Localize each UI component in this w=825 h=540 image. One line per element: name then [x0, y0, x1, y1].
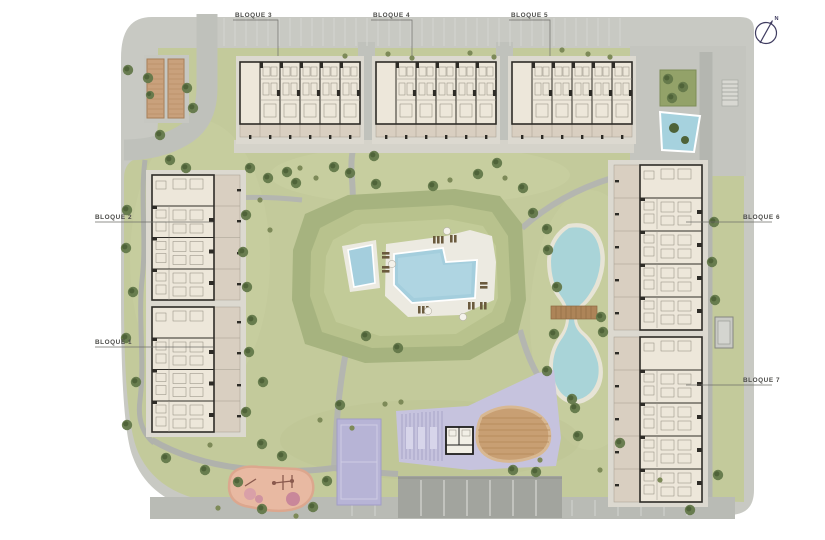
- pergola-2: [168, 59, 184, 118]
- site-plan-page: BLOQUE 3 BLOQUE 4 BLOQUE 5 BLOQUE 2 BLOQ…: [0, 0, 825, 540]
- building-bloque-5: [508, 56, 636, 144]
- label-text-bloque-7: BLOQUE 7: [743, 377, 780, 384]
- label-text-bloque-2: BLOQUE 2: [95, 214, 132, 221]
- play-circle-2: [255, 495, 263, 503]
- parking-area: [398, 476, 562, 518]
- pool-house: [446, 427, 473, 454]
- site-plan-canvas: BLOQUE 3 BLOQUE 4 BLOQUE 5 BLOQUE 2 BLOQ…: [0, 0, 825, 540]
- sand-mound: [477, 407, 551, 461]
- building-bloque-4: [372, 56, 500, 144]
- plaza: [630, 46, 746, 176]
- label-text-bloque-5: BLOQUE 5: [511, 12, 548, 19]
- pond-bridge: [551, 306, 597, 319]
- plaza-steps: [722, 80, 738, 106]
- north-label: N: [775, 16, 779, 22]
- label-text-bloque-1: BLOQUE 1: [95, 339, 132, 346]
- plaza-pool: [660, 112, 700, 152]
- play-circle-1: [244, 488, 256, 500]
- building-bloque-2: [146, 170, 246, 305]
- garage-skylights: [406, 427, 437, 449]
- building-bloque-1: [146, 302, 246, 437]
- pergola-1: [147, 59, 164, 118]
- playground: [229, 467, 313, 511]
- play-circle-3: [286, 492, 300, 506]
- label-text-bloque-3: BLOQUE 3: [235, 12, 272, 19]
- label-text-bloque-4: BLOQUE 4: [373, 12, 410, 19]
- plaza-pool-plant-2: [681, 136, 689, 144]
- building-bloque-6: [608, 160, 708, 335]
- building-bloque-3: [236, 56, 364, 146]
- plaza-pool-plant-1: [669, 123, 679, 133]
- pond-area: [547, 223, 605, 404]
- utility-shed-inner: [718, 321, 730, 344]
- label-text-bloque-6: BLOQUE 6: [743, 214, 780, 221]
